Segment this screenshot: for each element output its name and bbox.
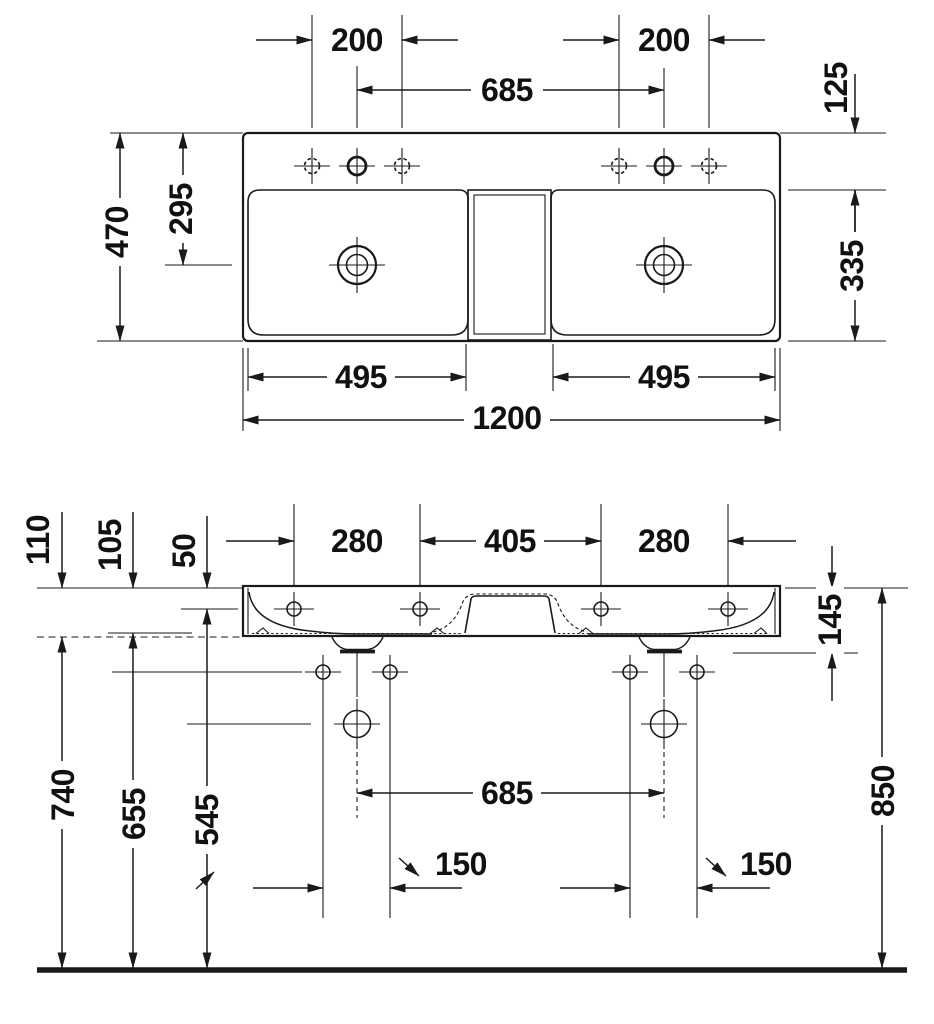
plan-tap-holes-right bbox=[601, 148, 727, 184]
dim-bolt-pair-left: 150 bbox=[435, 846, 487, 882]
dim-ledge-depth: 125 bbox=[818, 62, 854, 114]
washbasin-technical-drawing: 200 200 685 125 335 470 295 bbox=[0, 0, 934, 1024]
leader-arrow-545 bbox=[196, 872, 214, 889]
dim-basin-width-right: 495 bbox=[638, 359, 690, 395]
dim-drain-centers: 685 bbox=[481, 775, 533, 811]
front-center-deck-hidden-edge bbox=[433, 594, 587, 632]
front-drain-boss-left bbox=[332, 637, 383, 652]
leader-arrow-150-right bbox=[706, 858, 726, 876]
dim-rim-to-underside: 105 bbox=[92, 519, 128, 571]
plan-center-deck-outer bbox=[468, 190, 551, 340]
dim-floor-to-fixing-bolts: 655 bbox=[116, 788, 152, 840]
dim-floor-to-drain: 545 bbox=[189, 794, 225, 846]
technical-drawing-page: 200 200 685 125 335 470 295 bbox=[0, 0, 934, 1024]
dim-rim-to-fixing: 50 bbox=[166, 534, 202, 569]
dim-total-depth: 470 bbox=[99, 206, 135, 258]
plan-center-deck-inner bbox=[474, 195, 545, 334]
front-center-deck bbox=[465, 596, 555, 633]
dim-total-width: 1200 bbox=[472, 400, 541, 436]
dim-tap-holes-left: 200 bbox=[331, 22, 383, 58]
leader-arrow-150-left bbox=[399, 858, 419, 876]
plan-view: 200 200 685 125 335 470 295 bbox=[97, 15, 886, 436]
dim-fixing-span-center: 405 bbox=[484, 523, 536, 559]
plan-drain-right bbox=[636, 237, 692, 293]
dim-basin-width-left: 495 bbox=[335, 359, 387, 395]
dim-fixing-span-right: 280 bbox=[638, 523, 690, 559]
dim-rim-to-underside-outer: 110 bbox=[20, 515, 56, 565]
dim-drain-setback: 295 bbox=[163, 183, 199, 235]
front-body-outline bbox=[243, 586, 780, 636]
plan-tap-holes-left bbox=[294, 148, 420, 184]
plan-drain-left bbox=[329, 237, 385, 293]
dim-basin-depth: 335 bbox=[834, 240, 870, 292]
plan-body-outline bbox=[243, 133, 780, 341]
dim-floor-to-rim: 850 bbox=[865, 765, 901, 817]
front-reference-lines bbox=[37, 588, 908, 724]
front-view: 280 405 280 110 740 105 655 50 bbox=[20, 504, 908, 970]
front-fixing-holes bbox=[274, 592, 748, 626]
dim-fixing-span-left: 280 bbox=[331, 523, 383, 559]
plan-basin-right bbox=[551, 190, 775, 335]
front-bowl-curve-left bbox=[249, 592, 432, 634]
front-drain-boss-right bbox=[639, 637, 690, 652]
dim-tap-holes-right: 200 bbox=[638, 22, 690, 58]
front-bowl-curve-right bbox=[588, 592, 774, 634]
plan-basin-left bbox=[248, 190, 468, 335]
dim-bolt-pair-right: 150 bbox=[740, 846, 792, 882]
dim-tap-centers: 685 bbox=[481, 72, 533, 108]
dim-floor-to-underside: 740 bbox=[45, 769, 81, 821]
dim-rim-to-outlet: 145 bbox=[812, 594, 848, 646]
